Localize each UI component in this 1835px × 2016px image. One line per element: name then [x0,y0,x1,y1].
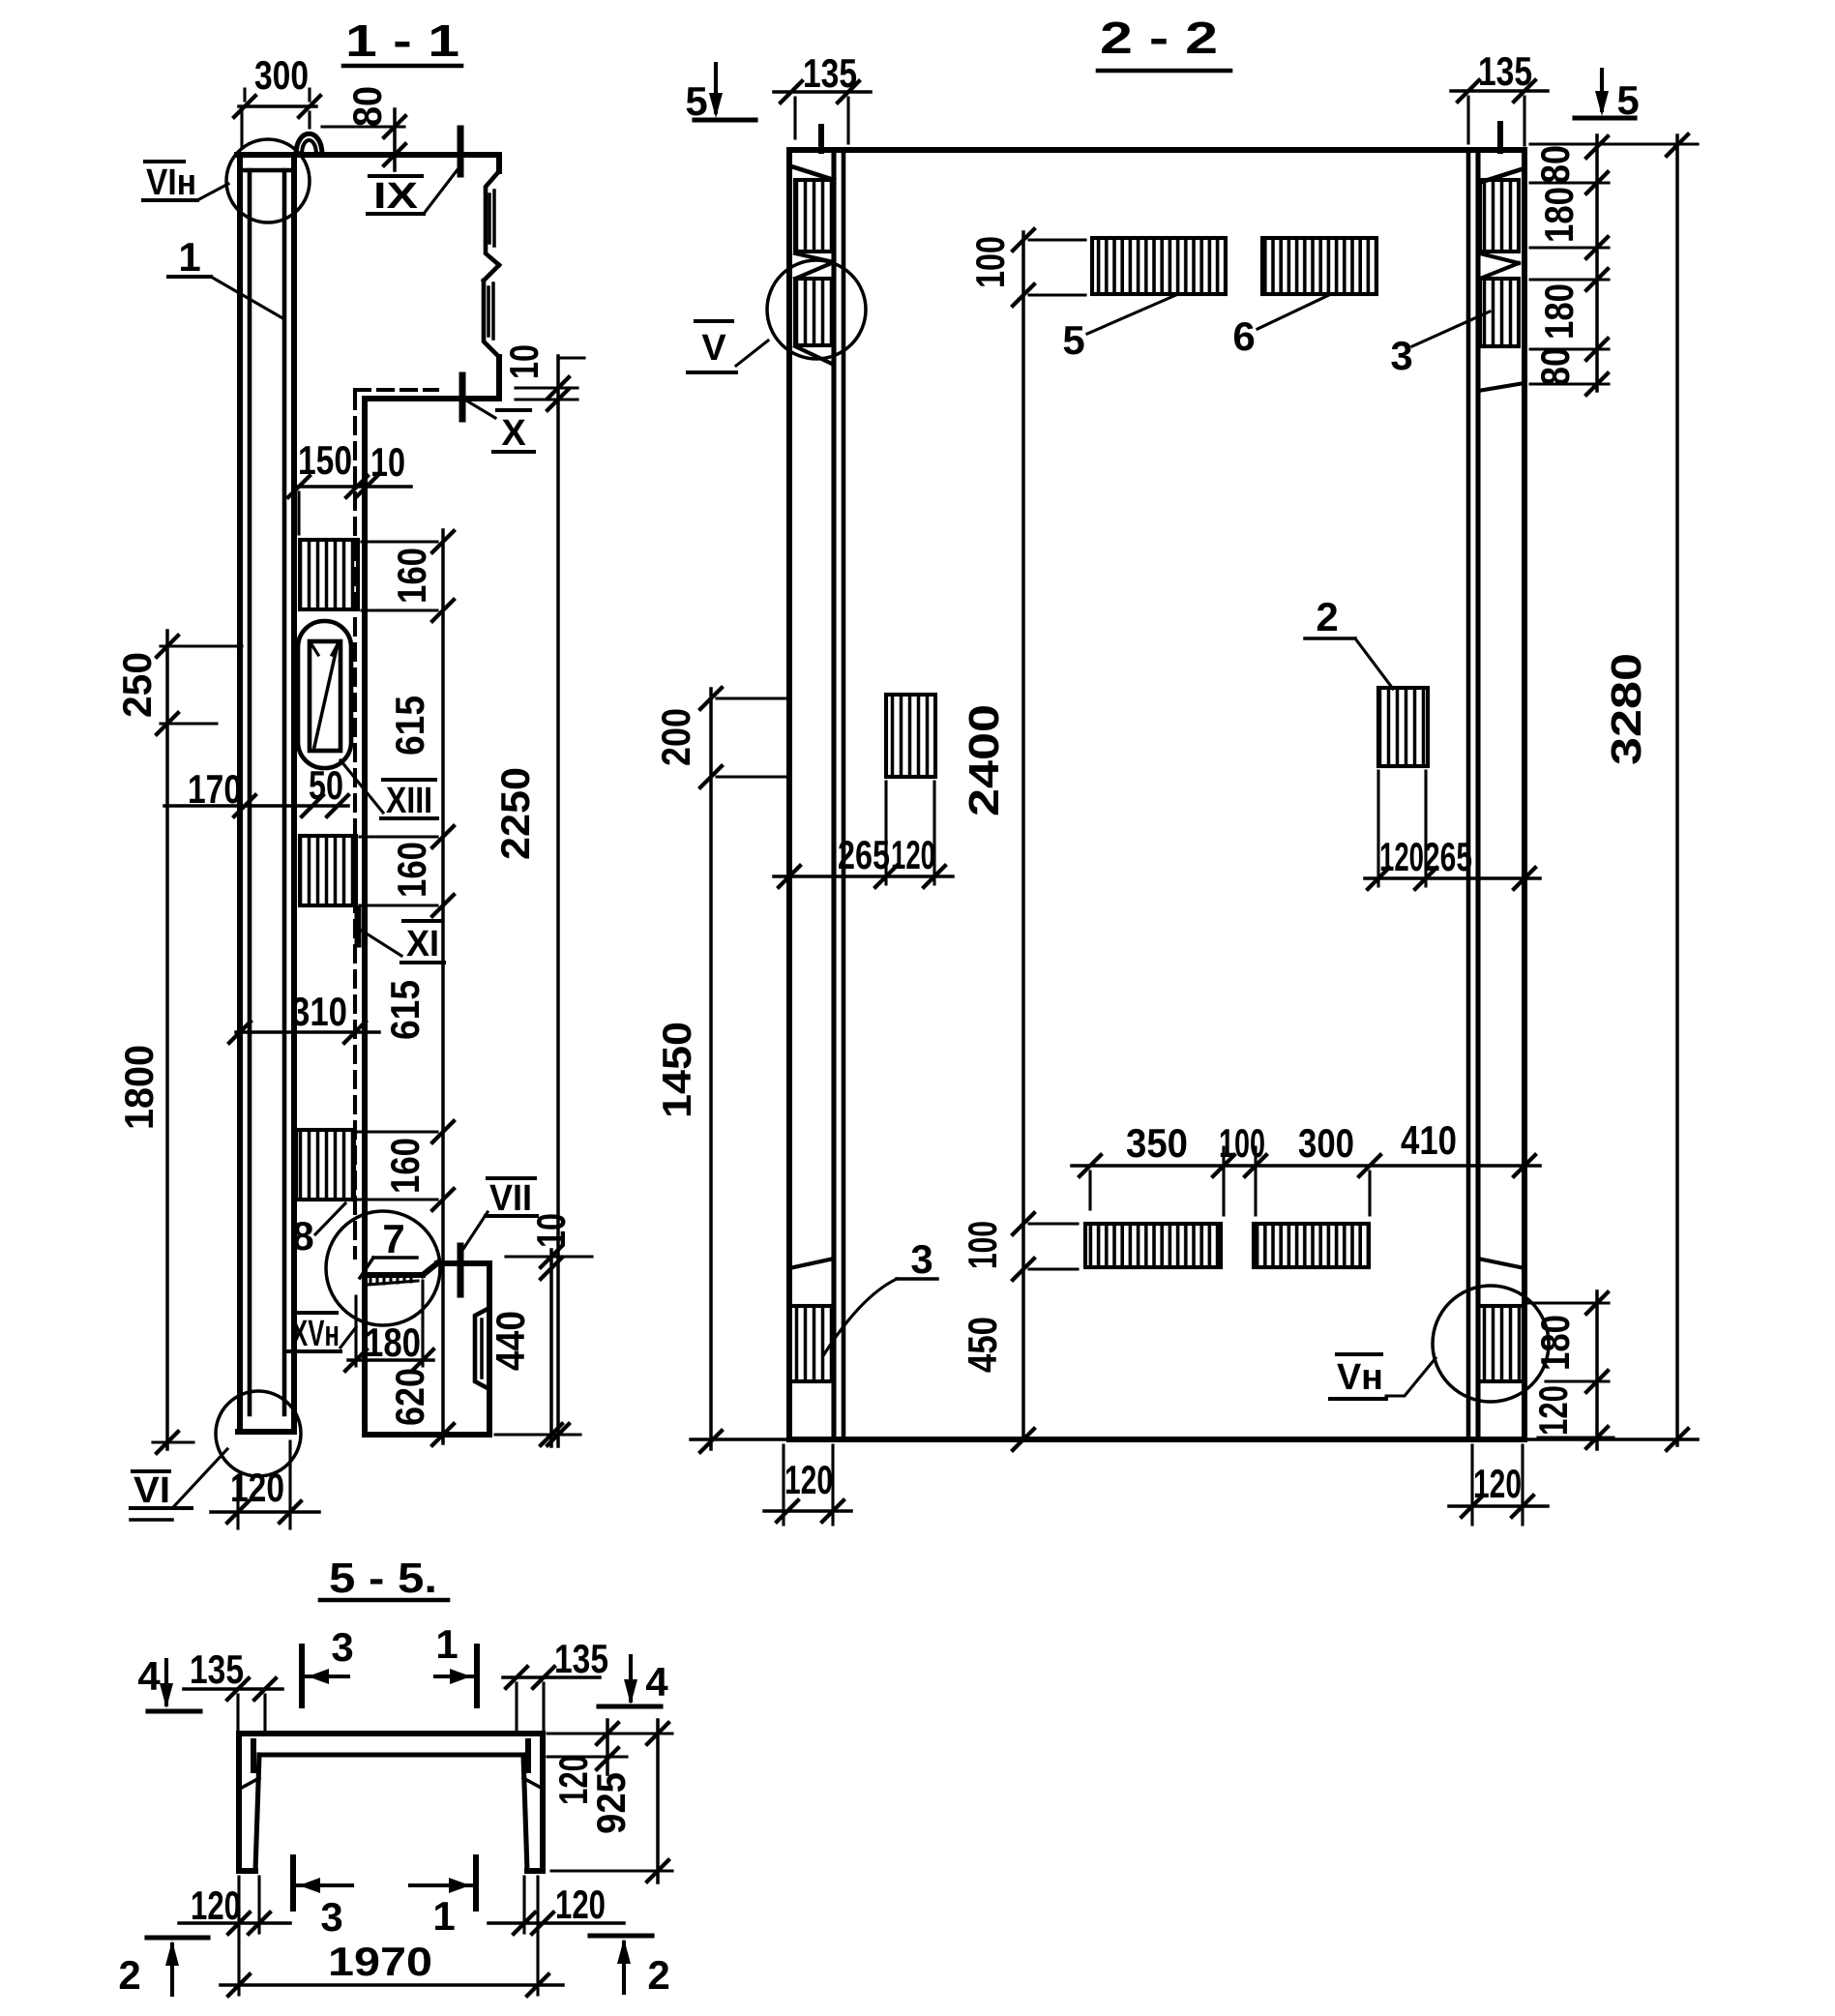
svg-text:150: 150 [298,437,352,483]
svg-text:3: 3 [910,1236,932,1282]
svg-text:120: 120 [891,832,935,877]
svg-text:265: 265 [838,832,890,877]
svg-text:120: 120 [1530,1385,1576,1436]
svg-text:265: 265 [1424,834,1472,879]
svg-text:1450: 1450 [654,1022,699,1118]
svg-text:200: 200 [653,708,698,766]
svg-text:10: 10 [528,1213,574,1248]
svg-text:1 - 1: 1 - 1 [345,15,459,66]
svg-text:100: 100 [960,1221,1005,1269]
svg-text:100: 100 [967,236,1013,288]
svg-text:8: 8 [291,1213,313,1259]
svg-text:410: 410 [1401,1117,1457,1163]
svg-text:310: 310 [291,989,347,1034]
svg-text:XIII: XIII [386,781,432,821]
svg-text:300: 300 [1298,1120,1354,1166]
svg-text:180: 180 [1536,283,1582,340]
svg-text:135: 135 [554,1636,608,1681]
svg-text:VI: VI [133,1470,170,1511]
svg-text:120: 120 [191,1883,241,1928]
svg-text:1: 1 [432,1893,455,1939]
svg-text:2 - 2: 2 - 2 [1100,13,1218,63]
svg-text:300: 300 [254,52,309,98]
svg-text:5: 5 [685,78,707,124]
svg-text:6: 6 [1232,313,1255,359]
svg-text:XVн: XVн [291,1314,340,1354]
svg-text:80: 80 [344,86,390,127]
svg-text:80: 80 [1532,347,1578,386]
svg-text:180: 180 [365,1319,421,1365]
svg-text:4: 4 [137,1653,161,1699]
svg-text:X: X [501,413,526,454]
svg-text:VIн: VIн [146,163,196,203]
svg-text:IX: IX [373,176,419,217]
svg-text:1970: 1970 [328,1939,432,1984]
svg-text:1800: 1800 [116,1045,162,1130]
svg-text:5 - 5.: 5 - 5. [329,1555,437,1602]
svg-text:3: 3 [320,1894,342,1940]
svg-text:2: 2 [118,1952,140,1998]
svg-text:10: 10 [501,344,547,379]
svg-text:120: 120 [555,1882,606,1927]
svg-text:160: 160 [382,1138,428,1194]
svg-text:180: 180 [1536,187,1582,243]
svg-text:3: 3 [1390,333,1412,378]
svg-text:100: 100 [1219,1120,1265,1166]
svg-text:160: 160 [389,842,434,898]
svg-text:1: 1 [178,234,200,280]
svg-text:2: 2 [1316,594,1338,639]
svg-text:3: 3 [331,1624,353,1670]
svg-text:7: 7 [382,1216,404,1261]
svg-text:620: 620 [387,1368,432,1426]
svg-text:4: 4 [645,1659,668,1705]
svg-text:925: 925 [588,1772,634,1834]
svg-text:5: 5 [1062,317,1084,363]
svg-text:135: 135 [190,1646,244,1692]
svg-text:450: 450 [960,1317,1005,1373]
svg-text:1: 1 [435,1621,458,1667]
svg-text:615: 615 [387,696,432,756]
svg-text:160: 160 [389,548,434,604]
svg-text:180: 180 [1532,1315,1578,1371]
svg-text:Vн: Vн [1337,1357,1383,1398]
svg-text:250: 250 [114,652,160,718]
svg-text:350: 350 [1126,1120,1188,1166]
svg-text:120: 120 [784,1457,833,1502]
svg-text:VII: VII [489,1178,532,1219]
svg-text:440: 440 [488,1311,533,1371]
svg-text:XI: XI [406,924,439,964]
svg-text:2: 2 [647,1952,669,1998]
svg-text:2400: 2400 [961,704,1008,816]
svg-text:3280: 3280 [1603,653,1650,765]
svg-text:50: 50 [309,762,343,808]
svg-text:120: 120 [1379,834,1424,879]
svg-text:80: 80 [1532,145,1578,184]
svg-text:135: 135 [1478,48,1532,94]
svg-text:V: V [701,328,726,369]
svg-text:615: 615 [382,980,428,1040]
svg-text:2250: 2250 [492,767,538,860]
